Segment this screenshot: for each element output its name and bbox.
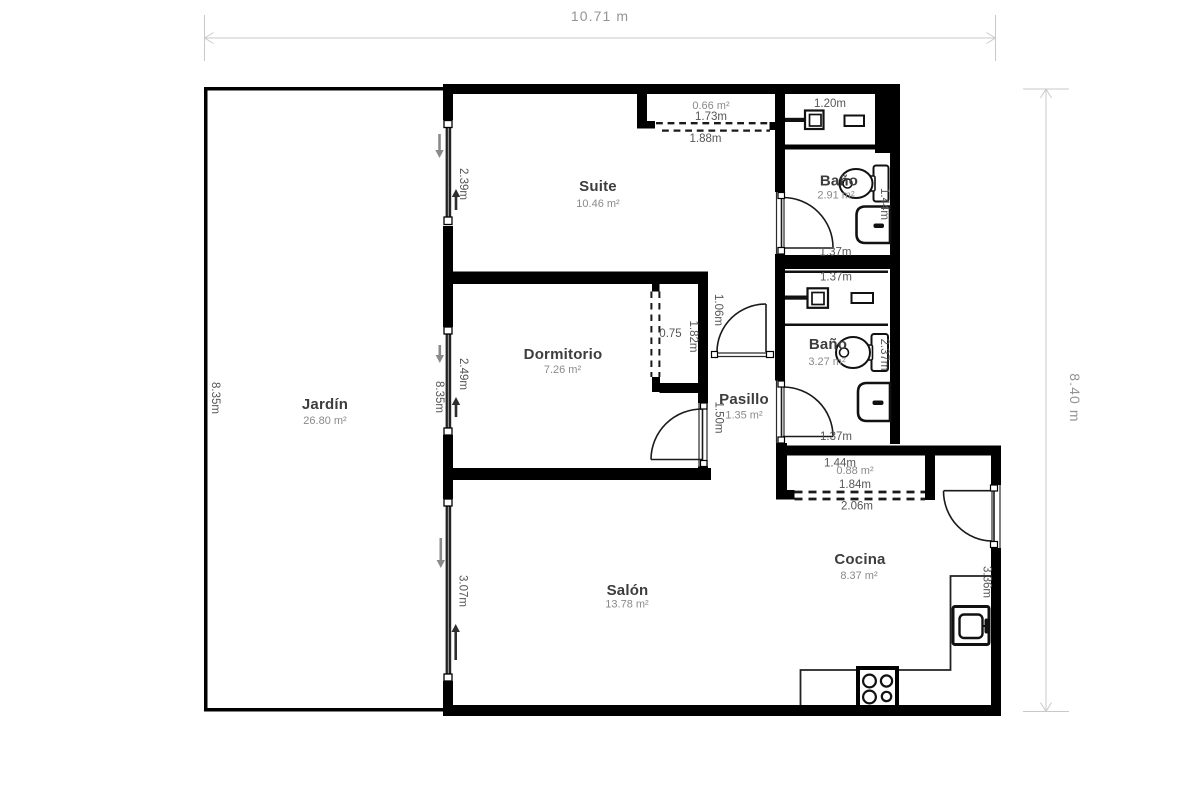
- svg-text:2.91 m²: 2.91 m²: [817, 190, 855, 202]
- svg-text:1.44m: 1.44m: [878, 188, 890, 220]
- svg-text:Baño: Baño: [809, 336, 847, 353]
- svg-text:Salón: Salón: [607, 582, 649, 599]
- svg-text:1.35 m²: 1.35 m²: [725, 410, 763, 422]
- svg-text:10.71 m: 10.71 m: [571, 8, 629, 24]
- svg-text:1.73m: 1.73m: [695, 111, 727, 123]
- svg-text:1.84m: 1.84m: [839, 479, 871, 491]
- svg-text:8.35m: 8.35m: [433, 381, 445, 413]
- svg-text:1.88m: 1.88m: [690, 133, 722, 145]
- svg-text:1.06m: 1.06m: [712, 294, 724, 326]
- svg-text:26.80 m²: 26.80 m²: [303, 415, 347, 427]
- svg-text:1.37m: 1.37m: [820, 272, 852, 284]
- svg-text:Pasillo: Pasillo: [719, 391, 769, 408]
- svg-text:Jardín: Jardín: [302, 396, 348, 413]
- svg-text:3.07m: 3.07m: [456, 575, 468, 607]
- svg-text:Cocina: Cocina: [834, 551, 886, 568]
- svg-text:1.20m: 1.20m: [814, 98, 846, 110]
- svg-text:1.50m: 1.50m: [713, 402, 725, 434]
- svg-text:10.46 m²: 10.46 m²: [576, 198, 620, 210]
- svg-text:8.40 m: 8.40 m: [1067, 373, 1083, 422]
- svg-text:7.26 m²: 7.26 m²: [544, 364, 582, 376]
- svg-text:Baño: Baño: [820, 173, 858, 190]
- svg-text:Suite: Suite: [579, 178, 617, 195]
- svg-text:2.49m: 2.49m: [457, 358, 469, 390]
- svg-text:2.39m: 2.39m: [457, 168, 469, 200]
- svg-text:1.82m: 1.82m: [687, 321, 699, 353]
- svg-text:1.37m: 1.37m: [820, 431, 852, 443]
- svg-text:Dormitorio: Dormitorio: [524, 346, 603, 363]
- svg-text:13.78 m²: 13.78 m²: [605, 599, 649, 611]
- svg-text:8.37 m²: 8.37 m²: [840, 570, 878, 582]
- svg-text:3.27 m²: 3.27 m²: [808, 356, 846, 368]
- svg-text:0.75: 0.75: [659, 328, 681, 340]
- svg-text:3.36m: 3.36m: [981, 566, 993, 598]
- svg-text:2.06m: 2.06m: [841, 501, 873, 513]
- svg-text:0.88 m²: 0.88 m²: [836, 465, 874, 477]
- svg-text:2.37m: 2.37m: [878, 339, 890, 371]
- svg-text:1.37m: 1.37m: [820, 247, 852, 259]
- svg-text:8.35m: 8.35m: [209, 382, 221, 414]
